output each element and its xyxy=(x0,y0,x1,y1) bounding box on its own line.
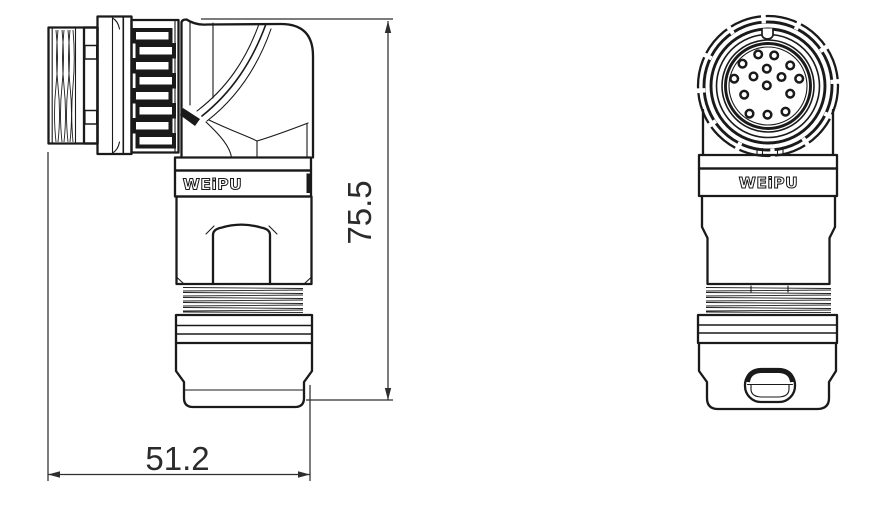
cable-band-detail xyxy=(180,24,308,158)
contact-pin xyxy=(786,90,794,98)
contact-pin xyxy=(730,75,738,83)
gland-threads xyxy=(183,288,303,313)
contact-pin xyxy=(754,51,762,59)
arrow-left xyxy=(48,471,60,478)
rear-shell-collar xyxy=(98,17,132,155)
front-view: WEiPU xyxy=(698,16,838,409)
contact-pin xyxy=(770,52,778,60)
technical-drawing: WEiPU xyxy=(0,0,872,508)
bayonet-ring xyxy=(84,28,98,144)
contact-pin xyxy=(778,73,786,81)
band-edge-mark xyxy=(307,174,312,194)
contact-pin xyxy=(740,91,748,99)
cable-boot xyxy=(176,343,312,407)
front-brand-band: WEiPU xyxy=(699,155,837,196)
elbow-housing xyxy=(180,20,313,158)
dimension-width: 51.2 xyxy=(48,152,310,481)
front-gland-nut xyxy=(702,196,835,284)
front-seal-flange xyxy=(698,315,837,343)
drawing-canvas: WEiPU xyxy=(0,0,872,508)
contact-pin xyxy=(786,62,794,70)
arrow-bottom xyxy=(385,388,391,400)
arrow-right xyxy=(298,471,310,478)
contact-pin xyxy=(763,65,771,73)
width-dimension-value: 51.2 xyxy=(145,440,209,477)
gland-nut xyxy=(177,197,312,285)
boot-latch-slot xyxy=(745,369,795,402)
side-view: WEiPU xyxy=(49,17,314,408)
height-dimension-value: 75.5 xyxy=(341,180,378,244)
front-brand-label: WEiPU xyxy=(739,174,798,192)
contact-pin xyxy=(746,110,754,118)
dimensions: 51.2 75.5 xyxy=(48,19,393,481)
contact-pin xyxy=(750,73,758,81)
front-gland-threads xyxy=(706,286,831,313)
contact-pin xyxy=(782,108,790,116)
front-cable-boot xyxy=(699,343,836,409)
contact-pin xyxy=(739,60,747,68)
contact-pin xyxy=(763,82,771,90)
keyway-notch xyxy=(762,29,773,40)
seal-flange xyxy=(176,315,312,343)
pin-field xyxy=(730,51,803,119)
contact-pin xyxy=(764,111,772,119)
contact-pin xyxy=(795,75,803,83)
coupling-grip-ribs xyxy=(132,20,179,153)
side-brand-label: WEiPU xyxy=(183,176,242,194)
arrow-top xyxy=(385,21,391,33)
side-brand-band: WEiPU xyxy=(175,158,311,197)
